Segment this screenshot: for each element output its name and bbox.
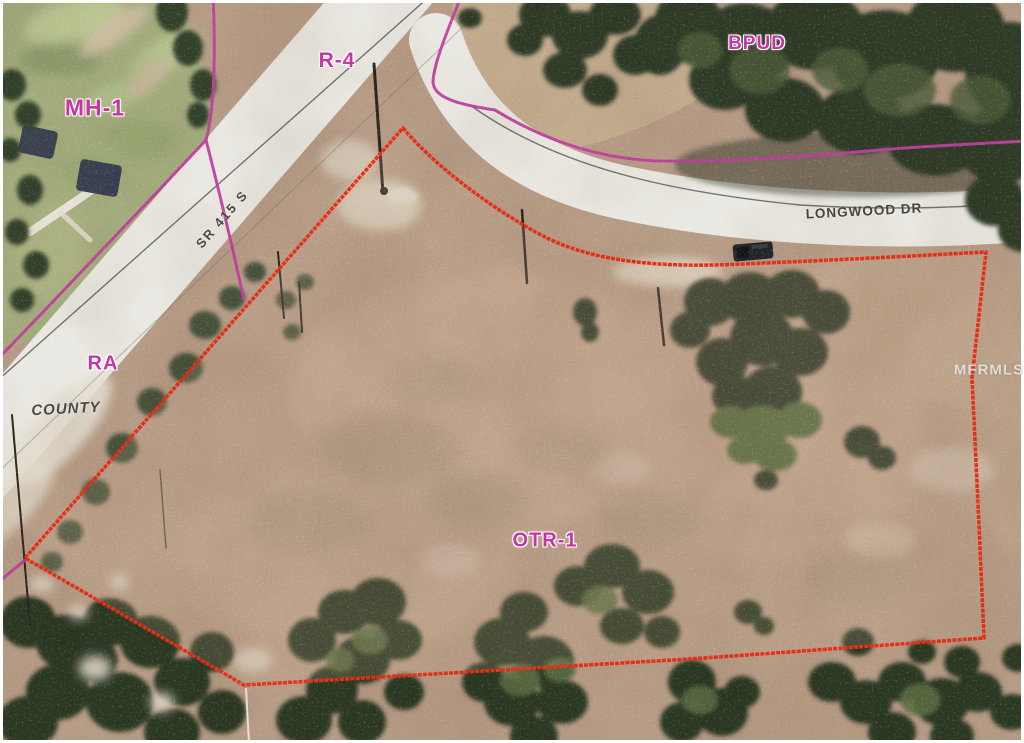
aerial-map (0, 0, 1024, 743)
photo-mottle (0, 0, 1024, 743)
aerial-map-screenshot: MH-1 R-4 BPUD RA OTR-1 SR 415 S LONGWOOD… (0, 0, 1024, 743)
